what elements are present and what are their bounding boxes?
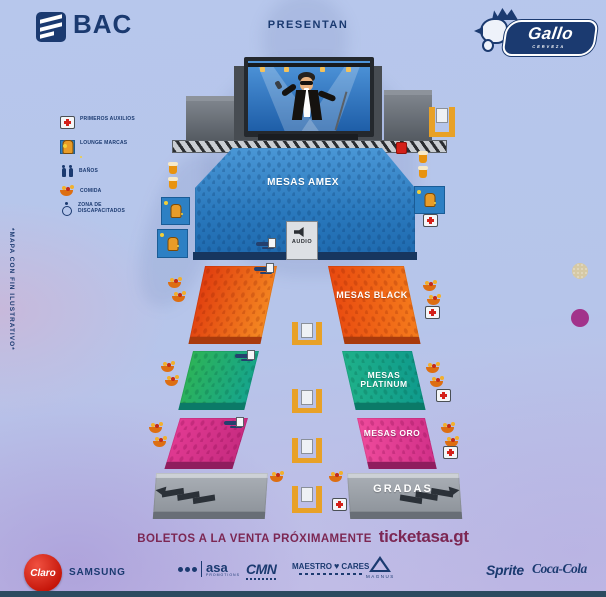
asa-promotions-logo: asa PROMOTIONS [178,561,240,578]
section-mesas-oro-right [357,418,435,462]
wheelchair-icon [60,202,73,215]
food-stand-icon [151,436,168,448]
stage-wing-right [384,90,432,147]
camera-desk-icon [256,238,276,251]
lounge-booth-icon [161,197,190,225]
lounge-icon [60,140,75,154]
asa-dots-icon [178,567,183,572]
concert-seating-map: BAC PRESENTAN Gallo CERVEZA PRIMEROS AUX… [0,0,606,597]
legend-item-banos: BAÑOS [60,164,139,182]
drink-stand-icon [416,166,431,179]
audio-console: AUDIO [286,221,318,260]
legend-label: BAÑOS [79,168,139,174]
food-stand-icon [163,375,180,387]
camera-desk-icon [235,350,255,363]
audio-label: AUDIO [287,239,317,245]
food-stand-icon [147,422,164,434]
first-aid-station-icon [436,389,451,402]
magnus-logo-text: MAGNUS [366,574,395,579]
restroom-icon [60,164,74,182]
first-aid-station-icon [332,498,347,511]
tickets-announcement: BOLETOS A LA VENTA PRÓXIMAMENTE ticketas… [0,527,606,547]
cmn-logo: CMN [246,561,276,580]
section-mesas-black-right [328,266,419,337]
speaker-icon [294,227,310,237]
stage-truss [248,63,370,67]
scaffold-tower [292,486,322,513]
food-icon [58,185,75,197]
maestro-cares-logo: MAESTRO ♥ CARES [292,562,369,575]
legend-label: COMIDA [80,188,140,194]
section-label-amex: MESAS AMEX [258,178,348,189]
food-stand-icon [170,291,187,303]
bottom-bar [0,591,606,597]
decorative-dot-beige [572,263,588,279]
food-stand-icon [268,471,285,483]
stage-screen-frame [244,57,374,137]
scaffold-tower [292,322,322,345]
drink-stand-icon [416,151,431,164]
magnus-logo: MAGNUS [366,556,395,579]
camera-desk-icon [254,263,274,276]
scaffold-tower [429,107,455,137]
gallo-logo: Gallo CERVEZA [474,6,596,58]
food-stand-icon [424,362,441,374]
stage-screen [248,61,370,131]
section-label-gradas: GRADAS [355,484,451,496]
rooster-wattle-icon [482,39,494,52]
sprite-logo: Sprite [486,562,524,578]
food-stand-icon [421,280,438,292]
asa-logo-subtext: PROMOTIONS [206,574,240,578]
coca-cola-logo: Coca-Cola [532,561,587,577]
section-label-oro: MESAS ORO [356,429,428,438]
first-aid-station-icon [423,214,438,227]
claro-logo: Claro [24,554,62,592]
lounge-booth-icon [414,186,445,214]
samsung-logo: SAMSUNG [69,567,126,578]
food-stand-icon [439,422,456,434]
food-stand-icon [428,376,445,388]
first-aid-station-icon [425,306,440,319]
food-stand-icon [166,277,183,289]
food-stand-icon [159,361,176,373]
legend-item-lounge-marcas: LOUNGE MARCAS [60,140,140,154]
performer-sunglasses [300,81,313,85]
bac-stripe [40,22,62,31]
section-mesas-black-left [190,266,277,337]
legend-label: ZONA DE DISCAPACITADOS [78,202,138,215]
map-disclaimer-note: *MAPA CON FIN ILUSTRATIVO* [8,228,15,408]
section-label-platinum: MESAS PLATINUM [348,371,420,389]
gallo-badge-text: Gallo [505,24,596,44]
camera-desk-icon [224,417,244,430]
legend-label: LOUNGE MARCAS [80,140,140,146]
magnus-triangle-icon [369,556,391,572]
legend-item-discapacitados: ZONA DE DISCAPACITADOS [60,202,138,215]
bac-stripe [40,31,54,38]
rooster-beak-icon [474,27,483,35]
presentan-title: PRESENTAN [208,19,408,31]
legend-item-primeros-auxilios: PRIMEROS AUXILIOS [60,116,140,129]
red-badge-icon [396,142,407,154]
tickets-text: BOLETOS A LA VENTA PRÓXIMAMENTE [137,533,372,545]
legend-item-comida: COMIDA [58,185,140,197]
food-stand-icon [327,471,344,483]
gallo-badge-subtext: CERVEZA [504,44,593,49]
lounge-booth-icon [157,229,188,258]
gallo-badge: Gallo CERVEZA [501,20,598,56]
section-label-black: MESAS BLACK [336,291,408,301]
first-aid-station-icon [443,446,458,459]
scaffold-tower [292,389,322,413]
scaffold-tower [292,438,322,463]
bac-logo-icon [36,12,66,42]
first-aid-icon [60,116,75,129]
drink-stand-icon [166,162,181,175]
stairs-icon [159,480,217,511]
decorative-dot-magenta [571,309,589,327]
claro-logo-text: Claro [30,568,56,579]
maestro-cares-subline [299,573,363,575]
bac-logo-text: BAC [73,9,132,40]
tickets-site-link[interactable]: ticketasa.gt [379,527,469,547]
heart-icon: ♥ [334,562,339,571]
food-stand-icon [425,294,442,306]
drink-stand-icon [166,177,181,190]
asa-divider [201,561,202,577]
legend-label: PRIMEROS AUXILIOS [80,116,140,122]
section-gradas-left [153,473,268,512]
stage-lights-icon [260,67,265,72]
maestro-text: MAESTRO [292,563,332,571]
